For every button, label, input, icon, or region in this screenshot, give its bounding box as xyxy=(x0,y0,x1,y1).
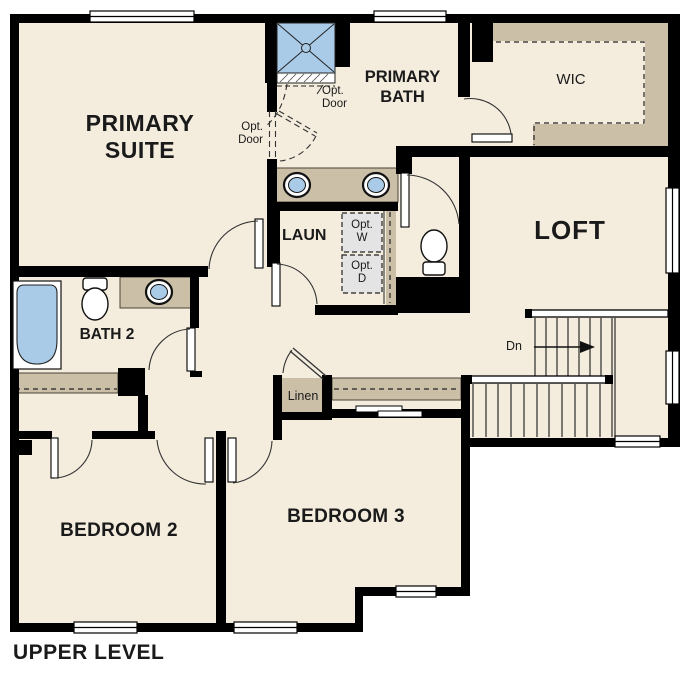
wc-top-wall xyxy=(396,146,470,157)
laundry-door-leaf xyxy=(272,263,280,306)
laundry-left-wall xyxy=(272,202,280,264)
stairs-down-label: Dn xyxy=(506,339,522,354)
bath2-toilet xyxy=(82,278,108,320)
bath2-sink xyxy=(146,280,172,304)
room-label-bedroom2: BEDROOM 2 xyxy=(33,520,205,542)
wc-stub-wall xyxy=(396,157,412,174)
window-loft-right xyxy=(666,188,679,273)
room-label-primary-bath: PRIMARY BATH xyxy=(345,67,460,107)
tub-basin xyxy=(17,285,57,364)
window-stairwell xyxy=(615,436,660,447)
exterior-wall-jog xyxy=(17,440,32,455)
bedroom2-closet-wall-chunk xyxy=(118,368,145,396)
wc-door-leaf xyxy=(401,173,409,227)
primary-suite-door-leaf xyxy=(255,219,263,268)
room-label-linen: Linen xyxy=(284,389,322,404)
bath2-door-leaf xyxy=(187,328,195,371)
shower-drain xyxy=(302,44,311,53)
opt-dryer-label: Opt. D xyxy=(342,260,382,286)
window-landing-right xyxy=(666,351,679,404)
primary-toilet xyxy=(421,230,447,275)
window-bedroom2 xyxy=(74,622,137,633)
wic-shelf-top xyxy=(493,22,668,41)
window-primary-bath xyxy=(374,11,446,22)
wic-shelf-bottom xyxy=(533,124,645,146)
vanity-laundry-wall xyxy=(272,202,398,211)
window-bedroom3-left xyxy=(234,622,297,633)
bedroom2-door-leaf xyxy=(205,438,213,482)
room-label-loft: LOFT xyxy=(510,215,630,246)
bath2-right-wall-lower xyxy=(190,371,202,377)
linen-left-wall xyxy=(273,375,282,440)
window-primary-suite xyxy=(90,11,194,22)
wic-shelf-right xyxy=(645,22,668,146)
room-label-bath2: BATH 2 xyxy=(68,326,146,344)
hall-stub-wall xyxy=(138,395,148,433)
primary-sink-right xyxy=(363,173,389,197)
wic-door-leaf xyxy=(472,134,512,142)
bath2-right-wall-upper xyxy=(190,277,199,328)
bedroom2-closet-door-leaf xyxy=(51,438,58,478)
room-label-bedroom3: BEDROOM 3 xyxy=(260,506,432,528)
bedroom3-step-wall xyxy=(355,587,363,632)
shower-left-wall xyxy=(265,14,277,83)
laundry-shelf-strip xyxy=(386,205,396,313)
bedroom2-closet-shelf xyxy=(13,373,118,393)
bedroom-top-wall-a xyxy=(10,431,52,439)
primary-suite-bottom-wall xyxy=(10,266,208,277)
room-label-wic: WIC xyxy=(540,71,602,89)
bedroom-divider-wall xyxy=(216,431,226,632)
hall-wall-chunk xyxy=(396,277,470,313)
opt-washer-label: Opt. W xyxy=(342,219,382,245)
loft-top-wall xyxy=(470,146,680,157)
bedroom3-closet-shelf xyxy=(332,378,461,400)
laundry-bottom-wall xyxy=(315,305,398,315)
exterior-wall-bottom xyxy=(10,623,363,632)
opt-door-label-left: Opt. Door xyxy=(198,121,263,147)
bedroom3-right-wall xyxy=(461,375,470,596)
shower xyxy=(277,23,335,86)
shower-curb xyxy=(277,73,335,83)
wc-right-wall xyxy=(459,157,470,277)
loft-railing-post xyxy=(525,309,532,318)
mid-railing xyxy=(466,376,612,383)
floor-plan: PRIMARY SUITE Opt. Door Opt. Door PRIMAR… xyxy=(0,0,687,687)
primary-sink-left xyxy=(284,173,310,197)
mid-railing-post-right xyxy=(605,375,613,384)
linen-bottom-wall xyxy=(273,412,332,420)
loft-railing xyxy=(528,310,668,317)
wic-corner-block xyxy=(472,22,493,62)
room-label-laundry: LAUN xyxy=(282,227,326,246)
window-bedroom3-right xyxy=(396,586,436,597)
bathtub xyxy=(13,281,61,369)
plan-title: UPPER LEVEL xyxy=(13,641,164,666)
bedroom3-door-leaf xyxy=(228,438,236,482)
suite-right-wall-upper xyxy=(267,83,277,112)
shower-right-wall xyxy=(335,14,350,67)
